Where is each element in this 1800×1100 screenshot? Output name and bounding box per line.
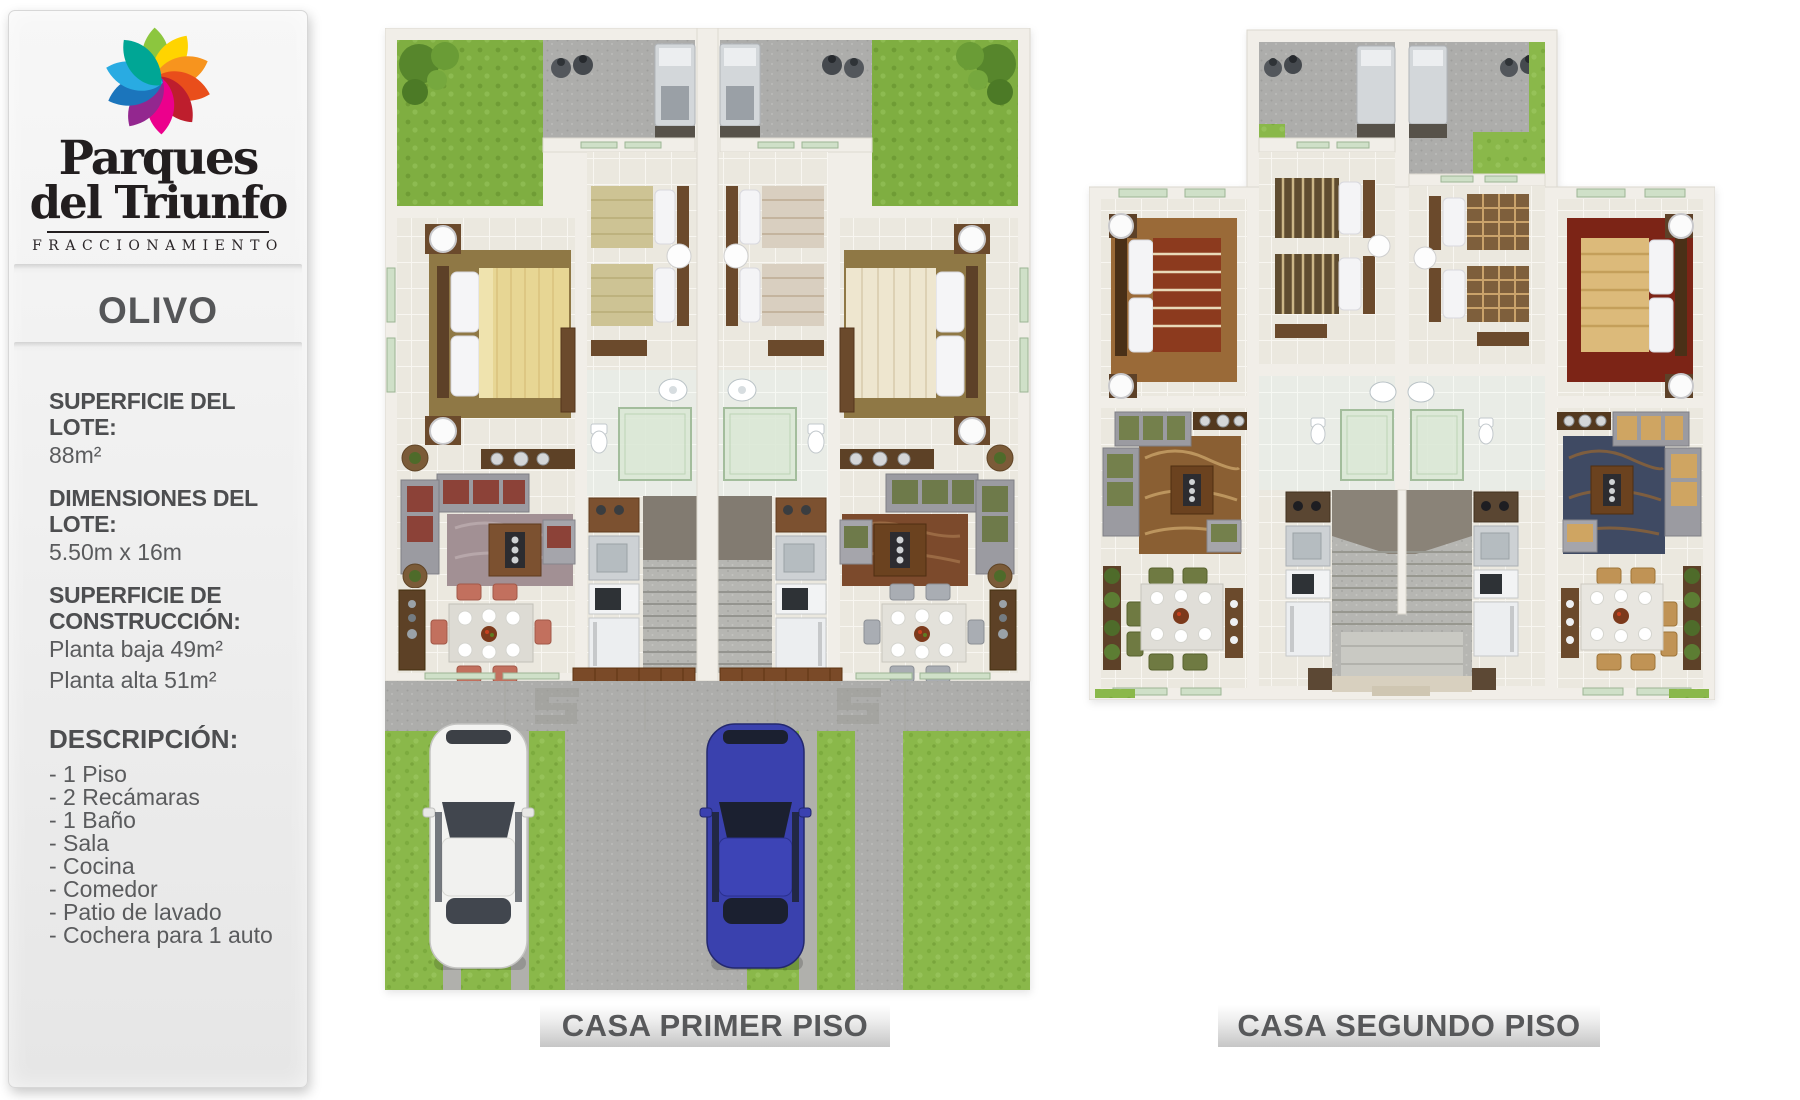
blue-car-icon <box>700 724 811 970</box>
back-garden <box>397 40 543 206</box>
spec-label-construction: SUPERFICIE DE CONSTRUCCIÓN: <box>49 582 283 634</box>
description-item: - 1 Piso <box>49 763 283 786</box>
floor-plan-2-render <box>1089 28 1715 700</box>
laundry-patio <box>720 40 872 152</box>
back-garden <box>872 40 1018 206</box>
brand-name-line1: Parques <box>9 137 307 181</box>
center-wall <box>697 28 718 681</box>
plan-1-caption: CASA PRIMER PISO <box>540 1005 890 1047</box>
staircase-center <box>1332 490 1472 696</box>
dining-room-left <box>1095 558 1247 698</box>
description-list: - 1 Piso - 2 Recámaras - 1 Baño - Sala -… <box>49 763 283 947</box>
wing-left <box>1095 189 1247 698</box>
kitchen <box>772 496 828 673</box>
white-car-icon <box>423 724 534 970</box>
bedroom-twin <box>587 152 697 370</box>
sidebar-divider <box>14 264 302 274</box>
laundry-patio <box>543 40 695 152</box>
spec-value-lot-surface: 88m² <box>49 442 283 469</box>
pinwheel-flower-icon <box>83 23 233 139</box>
description-item: - Cochera para 1 auto <box>49 924 283 947</box>
bedroom-twin <box>718 152 828 370</box>
description-item: - Cocina <box>49 855 283 878</box>
description-item: - 2 Recámaras <box>49 786 283 809</box>
unit-right <box>718 40 1028 682</box>
bathroom-right <box>1408 376 1545 490</box>
bedroom-main <box>840 218 1028 446</box>
floor-plan-first-level <box>385 28 1031 990</box>
living-room-left <box>1101 408 1247 558</box>
wing-right <box>1557 189 1709 698</box>
unit-left <box>387 40 697 682</box>
bedroom-main <box>387 218 575 446</box>
model-name: OLIVO <box>9 290 307 332</box>
staircase <box>718 496 772 673</box>
description-label: DESCRIPCIÓN: <box>49 724 283 755</box>
description-item: - 1 Baño <box>49 809 283 832</box>
bedroom-main-left <box>1101 189 1247 398</box>
living-room <box>840 445 1018 588</box>
sidebar-divider <box>14 342 302 352</box>
spec-value-lot-dimensions: 5.50m x 16m <box>49 539 283 566</box>
description-item: - Sala <box>49 832 283 855</box>
info-sidebar: Parques del Triunfo FRACCIONAMIENTO OLIV… <box>8 10 308 1088</box>
bedroom-twin-left <box>1259 152 1395 364</box>
living-room-right <box>1557 408 1703 558</box>
kitchen <box>587 496 643 673</box>
laundry-patio-left <box>1259 42 1395 152</box>
description-item: - Comedor <box>49 878 283 901</box>
spec-label-lot-surface: SUPERFICIE DEL LOTE: <box>49 388 283 440</box>
spec-label-lot-dimensions: DIMENSIONES DEL LOTE: <box>49 485 283 537</box>
description-item: - Patio de lavado <box>49 901 283 924</box>
living-room <box>397 445 575 588</box>
laundry-patio-right <box>1409 42 1545 186</box>
staircase <box>643 496 697 673</box>
brand-name-line2: del Triunfo <box>9 181 307 225</box>
specs-section: SUPERFICIE DEL LOTE: 88m² DIMENSIONES DE… <box>9 352 307 947</box>
bathroom <box>587 370 697 496</box>
bathroom <box>718 370 828 496</box>
dining-room <box>840 584 1018 682</box>
spec-value-ground-floor: Planta baja 49m² <box>49 636 283 663</box>
dining-room <box>397 584 575 682</box>
bathroom-left <box>1259 376 1396 490</box>
floor-plan-second-level <box>1089 28 1715 700</box>
kitchen-left <box>1259 490 1332 686</box>
kitchen-right <box>1472 490 1545 686</box>
brand-logo: Parques del Triunfo FRACCIONAMIENTO <box>9 11 307 254</box>
spec-value-upper-floor: Planta alta 51m² <box>49 667 283 694</box>
brand-subtitle: FRACCIONAMIENTO <box>9 238 307 254</box>
brand-rule <box>47 231 269 233</box>
bedroom-twin-right <box>1409 186 1545 364</box>
bedroom-main-right <box>1557 189 1703 398</box>
plan-2-caption: CASA SEGUNDO PISO <box>1218 1005 1600 1047</box>
flyer-page: Parques del Triunfo FRACCIONAMIENTO OLIV… <box>0 0 1800 1100</box>
dining-room-right <box>1557 558 1709 698</box>
floor-plan-1-render <box>385 28 1031 990</box>
